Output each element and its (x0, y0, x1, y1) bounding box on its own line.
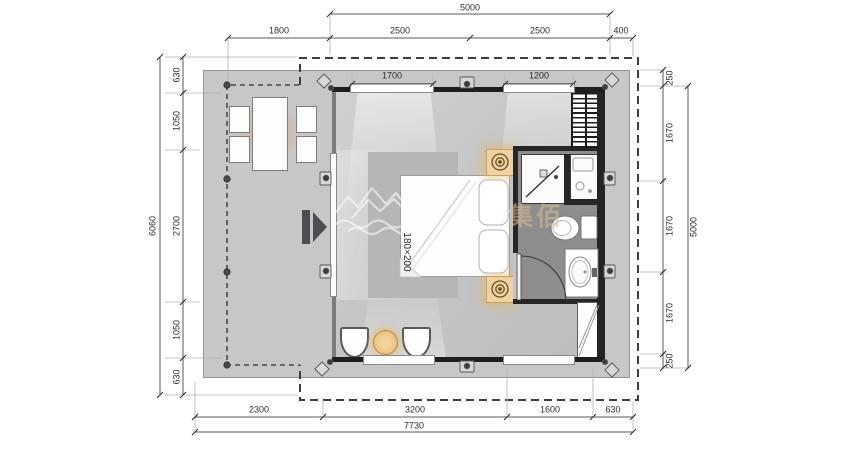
dim-right-seg-1: 250 (666, 70, 675, 85)
bathroom-door (517, 254, 566, 301)
bed-size-label: 180×200 (401, 232, 411, 271)
dim-top-seg-3: 2500 (530, 27, 550, 36)
dim-top-seg-4: 400 (613, 27, 628, 36)
washer-details (573, 158, 593, 192)
dim-bottom-seg-3: 1600 (540, 406, 560, 415)
dim-left-seg-4: 1050 (173, 320, 182, 340)
linework-layer (0, 0, 850, 450)
dim-left-seg-2: 1050 (173, 111, 182, 131)
dim-bottom-overall: 7730 (404, 422, 424, 431)
pillow (479, 180, 508, 225)
pillow (479, 230, 508, 273)
sink (565, 249, 598, 297)
deck-railing-dashed (227, 85, 300, 365)
dim-bottom-seg-4: 630 (605, 406, 620, 415)
dim-left-seg-3: 2700 (173, 216, 182, 236)
dim-right-seg-4: 1670 (666, 303, 675, 323)
dim-top-seg-2: 2500 (390, 27, 410, 36)
dim-bottom-seg-1: 2300 (249, 406, 269, 415)
dim-right-seg-2: 1670 (666, 123, 675, 143)
dim-left-overall: 6060 (149, 216, 158, 236)
dim-right-seg-5: 250 (666, 353, 675, 368)
dim-top-overall: 5000 (460, 4, 480, 13)
dim-left-seg-5: 630 (173, 369, 182, 384)
closet-details (579, 305, 599, 356)
dim-left-seg-1: 630 (173, 67, 182, 82)
floor-plan-canvas: 集佰 180×200 5000 1800 2500 2500 400 1700 … (0, 0, 850, 450)
watermark-text: 集佰 (508, 197, 564, 233)
dim-top-seg-1: 1800 (269, 27, 289, 36)
entry-arrow-icon (302, 210, 327, 244)
dim-window-1700: 1700 (382, 72, 402, 81)
shower-details (526, 166, 559, 197)
dim-right-overall: 5000 (690, 217, 699, 237)
dim-window-1200: 1200 (529, 72, 549, 81)
dim-bottom-seg-2: 3200 (405, 406, 425, 415)
dim-right-seg-3: 1670 (666, 216, 675, 236)
